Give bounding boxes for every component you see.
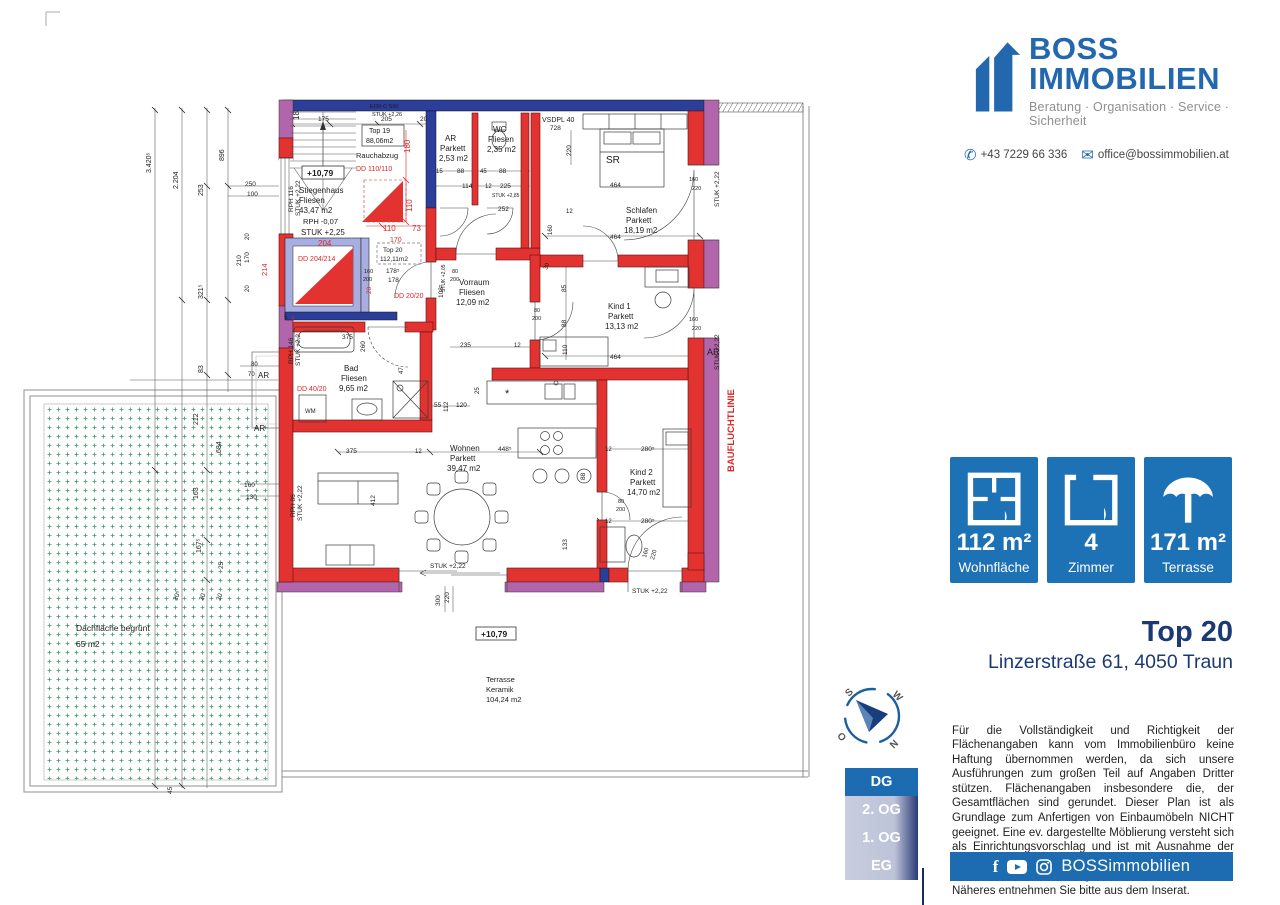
- facebook-icon[interactable]: f: [993, 857, 999, 877]
- plan-label: Top 19: [369, 128, 390, 135]
- plan-label: 55: [434, 402, 442, 409]
- compass-letter-o: O: [836, 729, 849, 742]
- plan-label: 88: [580, 472, 587, 480]
- email-address: office@bossimmobilien.at: [1098, 149, 1229, 161]
- plan-label: RPH 116: [288, 186, 295, 212]
- phone-link[interactable]: ✆ +43 7229 66 336: [964, 146, 1067, 164]
- plan-label: 88: [499, 168, 507, 175]
- plan-label: WM: [305, 409, 316, 415]
- plan-label: 12: [514, 343, 521, 349]
- info-panel: BOSS IMMOBILIEN Beratung · Organisation …: [940, 0, 1280, 905]
- listing-block: Top 20 Linzerstraße 61, 4050 Traun: [988, 616, 1233, 674]
- plan-label: 18,19 m2: [624, 226, 658, 235]
- furniture: [294, 114, 691, 565]
- stats-tiles: 112 m² Wohnfläche 4 Zimmer 171 m² Terras…: [950, 457, 1232, 583]
- compass-letter-w: W: [890, 689, 905, 704]
- plan-label: 45: [167, 786, 174, 794]
- plan-label: STUK +2,25: [301, 228, 345, 237]
- plan-label: 200: [616, 507, 625, 513]
- plan-label: 20: [420, 116, 428, 123]
- plan-label: Kind 2: [630, 468, 653, 477]
- plan-label: RPH -0,07: [303, 217, 338, 226]
- brand-name-line1: BOSS: [1029, 34, 1280, 64]
- plan-label: 160: [364, 269, 373, 275]
- plan-label: 200: [450, 277, 459, 283]
- plan-label: 88: [561, 319, 568, 327]
- plan-label: 160: [689, 317, 698, 323]
- plan-label: 20: [366, 286, 373, 294]
- plan-label: DD 20/20: [394, 293, 424, 300]
- frame-corner-mark: [46, 12, 60, 26]
- plan-label: 14,70 m2: [627, 488, 661, 497]
- plan-label: Terrasse: [486, 675, 515, 684]
- plan-label: VSDPL 40: [542, 117, 575, 124]
- sideboard-symbol: [326, 545, 374, 565]
- plan-label: 12: [605, 519, 612, 525]
- plan-label: 220: [692, 186, 701, 192]
- slope-triangle: [362, 181, 403, 222]
- plan-label: 321⁵: [198, 284, 205, 299]
- instagram-icon[interactable]: [1036, 859, 1052, 875]
- plan-label: 280⁵: [641, 446, 655, 453]
- plan-label: Parkett: [630, 478, 656, 487]
- plan-label: Rauchabzug: [356, 151, 398, 160]
- plan-label: 464: [610, 182, 621, 189]
- stat-tile-terrace: 171 m² Terrasse: [1144, 457, 1232, 583]
- plan-label: Fliesen: [341, 374, 367, 383]
- plan-label: 684: [216, 441, 223, 453]
- plan-label: 3.420⁵: [146, 152, 153, 173]
- kitchen-symbol: [487, 381, 597, 483]
- plan-label: 160: [689, 177, 698, 183]
- plan-label: Kind 1: [608, 302, 631, 311]
- plan-label: 100: [247, 191, 258, 198]
- stat-label: Wohnfläche: [958, 560, 1029, 575]
- plan-label: 43,47 m2: [299, 206, 333, 215]
- plan-label: 83: [198, 365, 205, 373]
- plan-label: STUK +2,05: [441, 264, 447, 292]
- green-roof-area: [24, 390, 282, 792]
- plan-label: *: [505, 388, 510, 400]
- plan-label: 25: [475, 387, 481, 394]
- listing-title: Top 20: [988, 616, 1233, 649]
- plan-label: 88,06m2: [366, 138, 393, 145]
- floor-tab-2og[interactable]: 2. OG: [845, 796, 918, 824]
- plan-label: 260: [360, 341, 367, 352]
- plan-label: 110: [405, 199, 414, 212]
- plan-label: 12: [605, 447, 612, 453]
- plan-label: 200: [363, 277, 372, 283]
- plan-label: 204: [318, 239, 332, 248]
- plan-label: RPH 86: [290, 494, 297, 517]
- social-handle: BOSSimmobilien: [1061, 857, 1190, 876]
- mail-icon: ✉: [1081, 146, 1094, 164]
- umbrella-icon: [1158, 471, 1218, 527]
- stat-tile-living-area: 112 m² Wohnfläche: [950, 457, 1038, 583]
- stat-tile-rooms: 4 Zimmer: [1047, 457, 1135, 583]
- plan-label: DD 204/214: [298, 256, 335, 263]
- plan-label: Parkett: [608, 312, 634, 321]
- plan-label: 18: [292, 111, 301, 120]
- contact-row: ✆ +43 7229 66 336 ✉ office@bossimmobilie…: [964, 146, 1229, 164]
- plan-label: Schlafen: [626, 206, 657, 215]
- desk-symbol: [645, 267, 689, 308]
- plan-label: 12,09 m2: [456, 298, 490, 307]
- plan-label: Fliesen: [488, 135, 514, 144]
- plan-label: 220: [444, 592, 451, 603]
- plan-label: 88: [457, 168, 465, 175]
- plan-label: 112,11m2: [380, 256, 408, 263]
- plan-label: 47: [399, 367, 405, 374]
- listing-address: Linzerstraße 61, 4050 Traun: [988, 651, 1233, 674]
- plan-label: STUK +2,22: [297, 485, 304, 521]
- washbasin-symbol: [352, 399, 382, 420]
- stat-value: 112 m²: [957, 529, 1032, 557]
- plan-label: 130: [246, 494, 257, 501]
- plan-label: 25: [218, 561, 225, 569]
- compass-letter-n: N: [887, 737, 900, 750]
- plan-label: 20: [245, 233, 251, 240]
- plan-label: 133: [562, 539, 569, 550]
- plan-label: 212: [193, 413, 200, 425]
- plan-label: Keramik: [486, 685, 514, 694]
- plan-label: STUK +2,22: [295, 180, 302, 216]
- plan-label: 80: [251, 362, 258, 368]
- plan-label: 80: [534, 308, 540, 314]
- plan-label: 178: [388, 277, 399, 284]
- plan-label: 412: [370, 495, 377, 506]
- plan-label: 120: [456, 402, 467, 409]
- brand-name-line2: IMMOBILIEN: [1029, 64, 1280, 94]
- plan-label: 39,47 m2: [447, 464, 481, 473]
- plan-label: 2.204: [173, 171, 180, 189]
- plan-label: +10,79: [481, 629, 508, 639]
- plan-label: 180: [403, 139, 412, 153]
- stat-label: Terrasse: [1162, 560, 1214, 575]
- stat-value: 4: [1084, 529, 1097, 557]
- plan-label: 375: [342, 334, 353, 341]
- brand-tagline: Beratung · Organisation · Service · Sich…: [1029, 100, 1280, 128]
- floor-tab-dg[interactable]: DG: [845, 768, 918, 796]
- plan-label: Top 20: [383, 247, 403, 254]
- plan-label: SR: [606, 155, 620, 166]
- plan-label: 375: [346, 448, 357, 455]
- plan-label: +10,79: [307, 168, 334, 178]
- plan-label: 160: [548, 224, 554, 235]
- plan-label: 170: [244, 252, 251, 263]
- plan-label: 225: [500, 183, 511, 190]
- plan-label: 12: [485, 184, 492, 190]
- plan-label: AR: [445, 134, 456, 143]
- plan-label: 220: [650, 549, 659, 561]
- floor-selector: DG 2. OG 1. OG EG: [845, 768, 918, 880]
- page-edge-mark: [922, 868, 924, 905]
- plan-label: 464: [610, 354, 621, 361]
- plan-label: 178⁵: [386, 268, 400, 275]
- plan-label: 112: [443, 401, 450, 412]
- plan-label: AR: [707, 347, 720, 357]
- plan-label: Parkett: [626, 216, 652, 225]
- plan-label: 80: [452, 269, 458, 275]
- plan-label: 160: [642, 547, 651, 559]
- phone-number: +43 7229 66 336: [981, 149, 1068, 161]
- plan-label: Dachfläche begrünt: [76, 623, 150, 633]
- plan-label: 253: [198, 184, 205, 196]
- plan-label: 250: [245, 181, 256, 188]
- plan-label: 2,35 m2: [487, 145, 516, 154]
- plan-label: 20: [245, 285, 251, 292]
- stat-label: Zimmer: [1068, 560, 1114, 575]
- floorplan-icon: [964, 471, 1024, 527]
- plan-label: 13,13 m2: [605, 322, 639, 331]
- plan-label: DD 40/20: [297, 386, 327, 393]
- plan-label: 160: [244, 482, 255, 489]
- plan-label: 170: [390, 237, 402, 244]
- plan-label: Parkett: [440, 144, 466, 153]
- plan-label: 175: [318, 116, 329, 123]
- plan-label: DD 110/110: [356, 166, 392, 173]
- plan-label: Vorraum: [459, 278, 490, 287]
- plan-label: STUK +2,85: [492, 193, 520, 199]
- plan-label: 12: [415, 449, 422, 455]
- plan-label: 163: [193, 487, 200, 499]
- plan-label: 80: [618, 499, 624, 505]
- plan-label: 2,53 m2: [439, 154, 468, 163]
- floor-tab-1og[interactable]: 1. OG: [845, 824, 918, 852]
- plan-label: STUK +2,22: [714, 171, 721, 207]
- plan-label: 235: [460, 342, 471, 349]
- plan-label: 12: [566, 209, 573, 215]
- plan-label: Bad: [344, 364, 358, 373]
- single-bed-symbol: [540, 337, 608, 366]
- sofa-symbol: [318, 473, 398, 504]
- boss-buildings-icon: [973, 34, 1021, 118]
- plan-label: 220: [692, 326, 701, 332]
- stat-value: 171 m²: [1150, 529, 1226, 557]
- plan-label: STUK +2,26: [372, 112, 402, 118]
- room-icon: [1061, 471, 1121, 527]
- plan-label: 252: [498, 206, 509, 213]
- plan-label: AR: [258, 371, 269, 380]
- phone-icon: ✆: [964, 146, 977, 164]
- plan-label: 214: [260, 263, 269, 276]
- plan-label: Fliesen: [459, 288, 485, 297]
- plan-label: 200: [532, 316, 541, 322]
- plan-label: 73: [412, 224, 421, 233]
- plan-label: AR: [254, 424, 265, 433]
- plan-label: WC: [493, 125, 507, 134]
- plan-label: BAUFLUCHTLINIE: [726, 389, 737, 472]
- plan-label: 110: [562, 344, 569, 355]
- plan-label: Parkett: [450, 454, 476, 463]
- floor-plan-drawing: 1817520520EI30-C S90STUK +2,26Top 1988,0…: [0, 0, 940, 905]
- plan-label: 110: [383, 224, 396, 233]
- plan-label: 220: [566, 145, 573, 156]
- plan-label: 15: [436, 169, 443, 175]
- plan-label: STUK +2,2: [295, 334, 302, 366]
- plan-label: 65 m2: [76, 639, 100, 649]
- plan-label: 85: [561, 284, 568, 292]
- floor-tab-eg[interactable]: EG: [845, 852, 918, 880]
- compass-needle: [856, 700, 888, 732]
- plan-label: Fliesen: [299, 196, 325, 205]
- plan-label: STUK +2,22: [632, 588, 668, 595]
- plan-label: RPH 146: [288, 337, 295, 364]
- plan-label: EI30-C S90: [370, 104, 398, 110]
- plan-label: Stiegenhaus: [299, 186, 343, 195]
- plan-label: 464: [610, 234, 621, 241]
- youtube-icon[interactable]: [1007, 860, 1027, 874]
- plan-label: 896: [219, 149, 226, 161]
- company-logo: BOSS IMMOBILIEN Beratung · Organisation …: [973, 34, 1280, 128]
- plan-label: Wohnen: [450, 444, 480, 453]
- single-bed-symbol: [663, 429, 691, 507]
- plan-label: 114: [462, 183, 473, 190]
- brochure-page: 1817520520EI30-C S90STUK +2,26Top 1988,0…: [0, 0, 1280, 905]
- wardrobe-symbol: [583, 114, 687, 129]
- plan-label: 70: [248, 372, 255, 378]
- social-footer: f BOSSimmobilien: [950, 852, 1233, 881]
- plan-label: STUK +2,22: [430, 563, 466, 570]
- compass-rose: S W N O: [836, 680, 908, 752]
- plan-label: 45: [480, 169, 487, 175]
- plan-label: 448⁵: [498, 446, 512, 453]
- plan-label: 300: [435, 595, 442, 606]
- email-link[interactable]: ✉ office@bossimmobilien.at: [1081, 146, 1229, 164]
- plan-label: 9,65 m2: [339, 384, 368, 393]
- plan-label: 104,24 m2: [486, 695, 521, 704]
- dining-table-symbol: [415, 471, 508, 563]
- plan-label: 280⁵: [641, 518, 655, 525]
- plan-label: 167⁵: [196, 538, 203, 553]
- plan-label: 210: [236, 255, 243, 266]
- plan-label: 728: [550, 125, 561, 132]
